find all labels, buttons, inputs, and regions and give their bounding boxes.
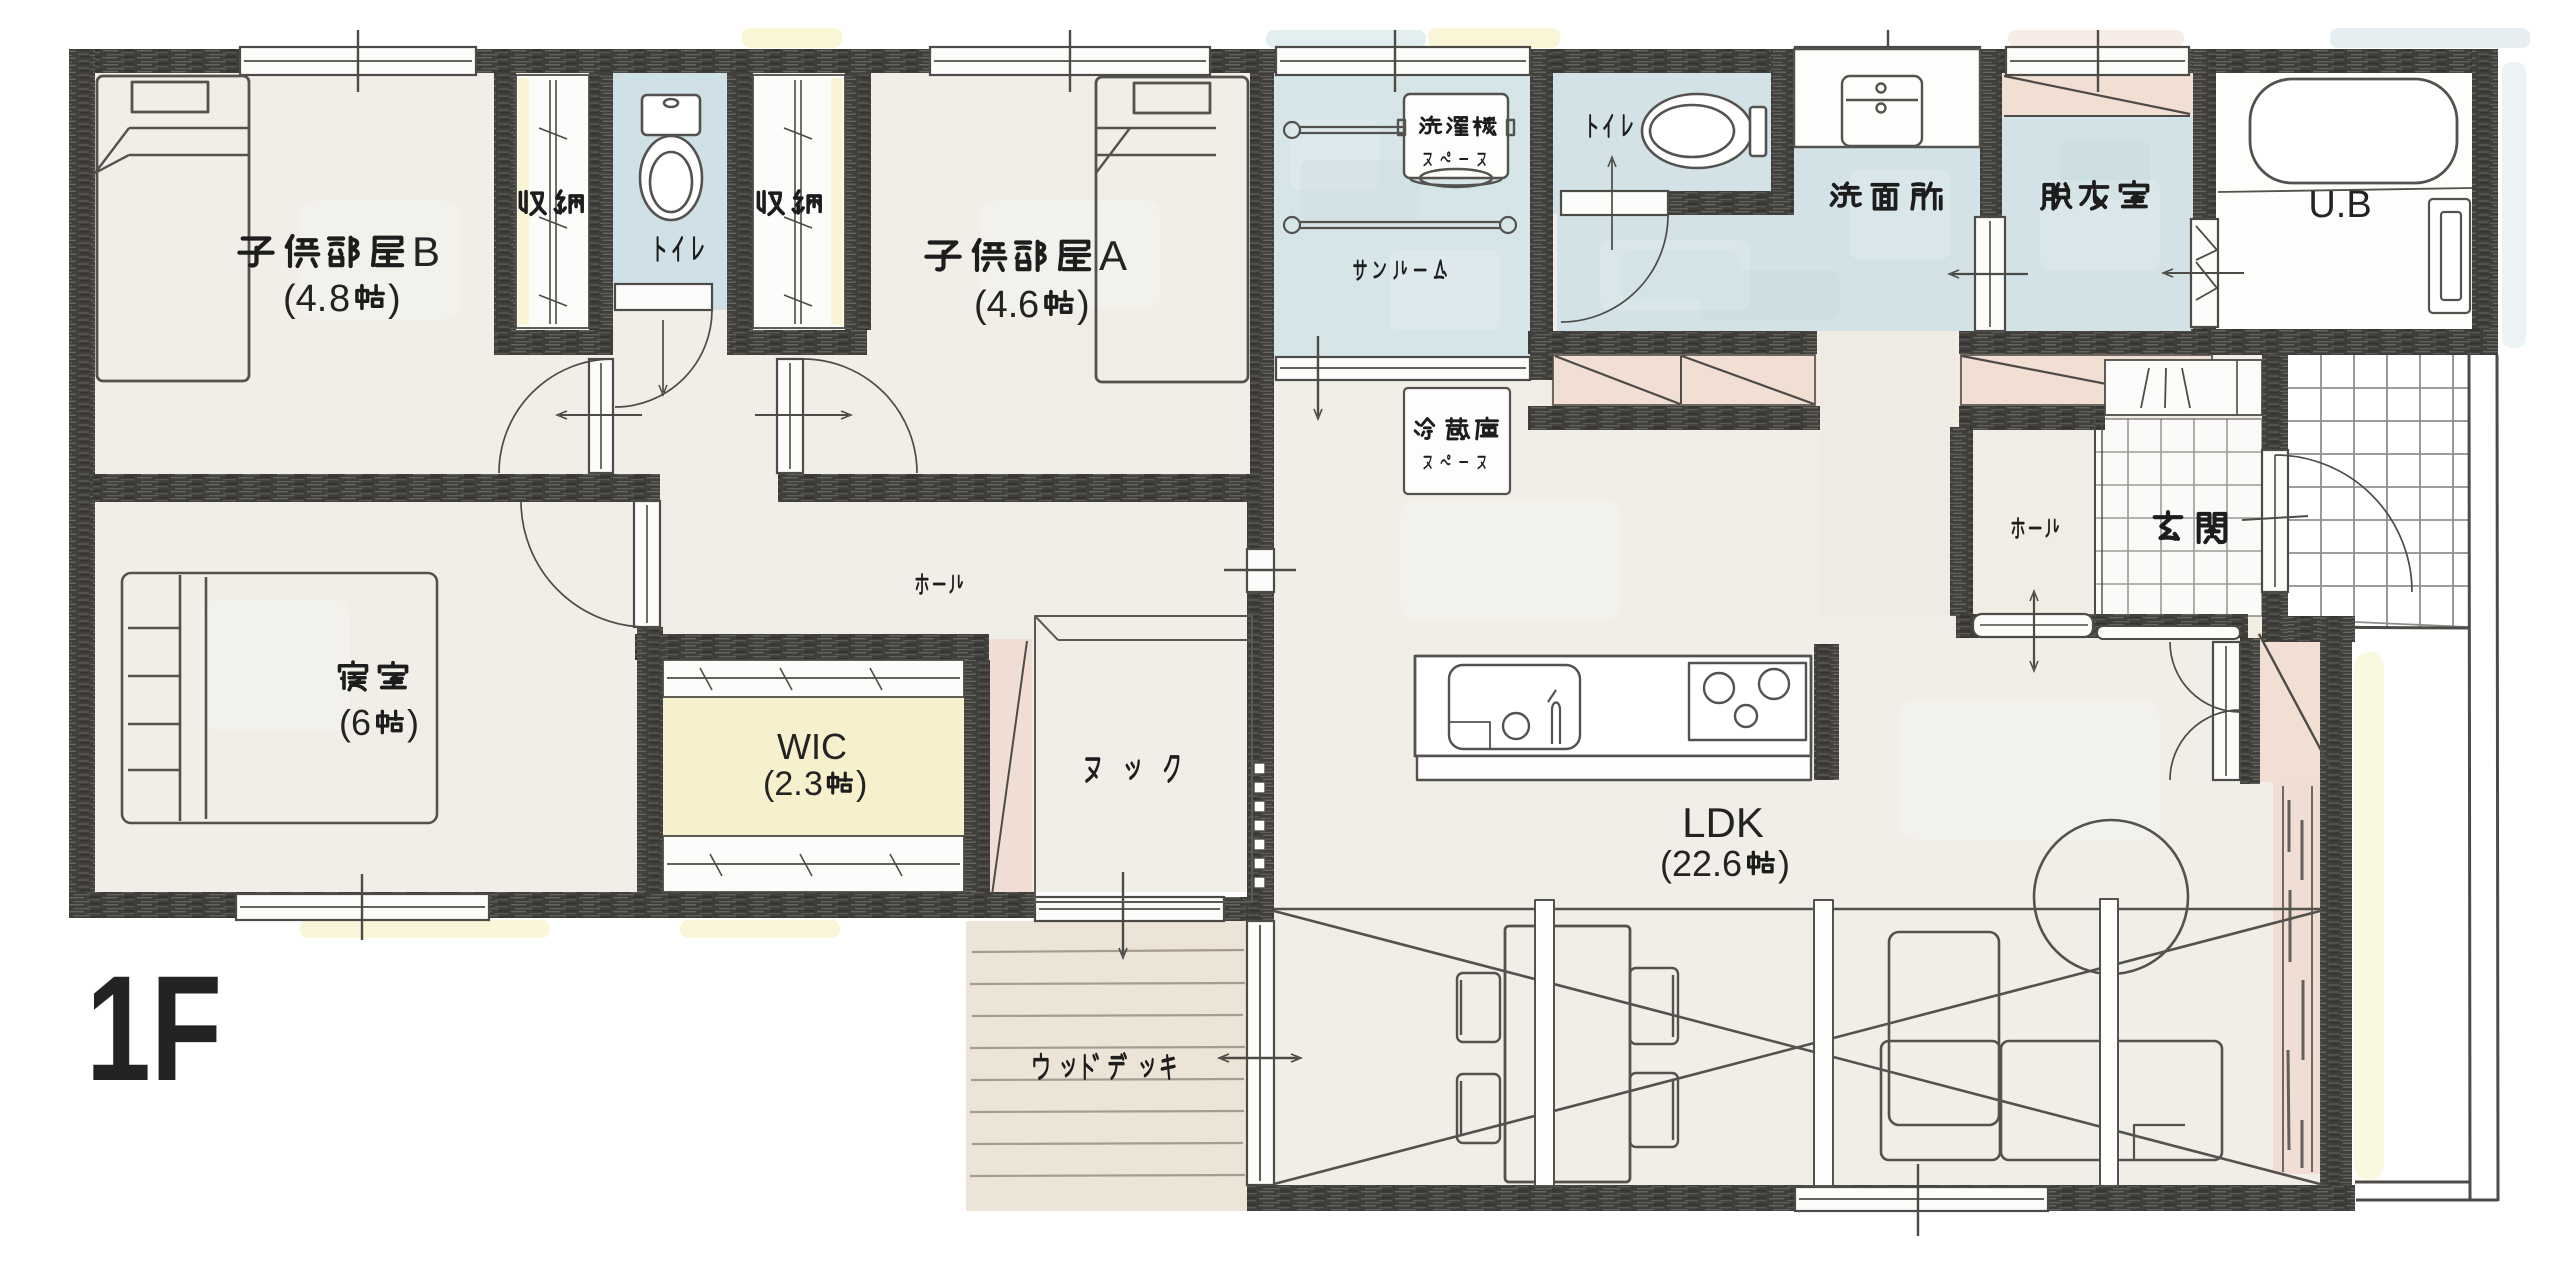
svg-text:1F: 1F [86,944,222,1112]
svg-text:(22.6: (22.6 [1660,843,1742,884]
svg-text:U.B: U.B [2308,184,2371,226]
svg-text:(4.: (4. [283,278,327,320]
svg-text:): ) [856,765,867,803]
svg-text:(4.: (4. [974,284,1018,326]
svg-text:): ) [388,278,401,320]
svg-text:A: A [1099,232,1127,279]
svg-text:): ) [1077,284,1090,326]
svg-text:LDK: LDK [1682,799,1764,846]
svg-text:8: 8 [329,278,350,320]
svg-text:B: B [412,228,440,275]
svg-text:(6: (6 [339,702,371,743]
svg-text:WIC: WIC [777,726,847,767]
svg-text:6: 6 [1018,284,1039,326]
svg-text:): ) [1778,843,1790,884]
svg-text:(2.: (2. [763,765,803,803]
svg-text:3: 3 [804,765,823,803]
svg-text:): ) [407,702,419,743]
